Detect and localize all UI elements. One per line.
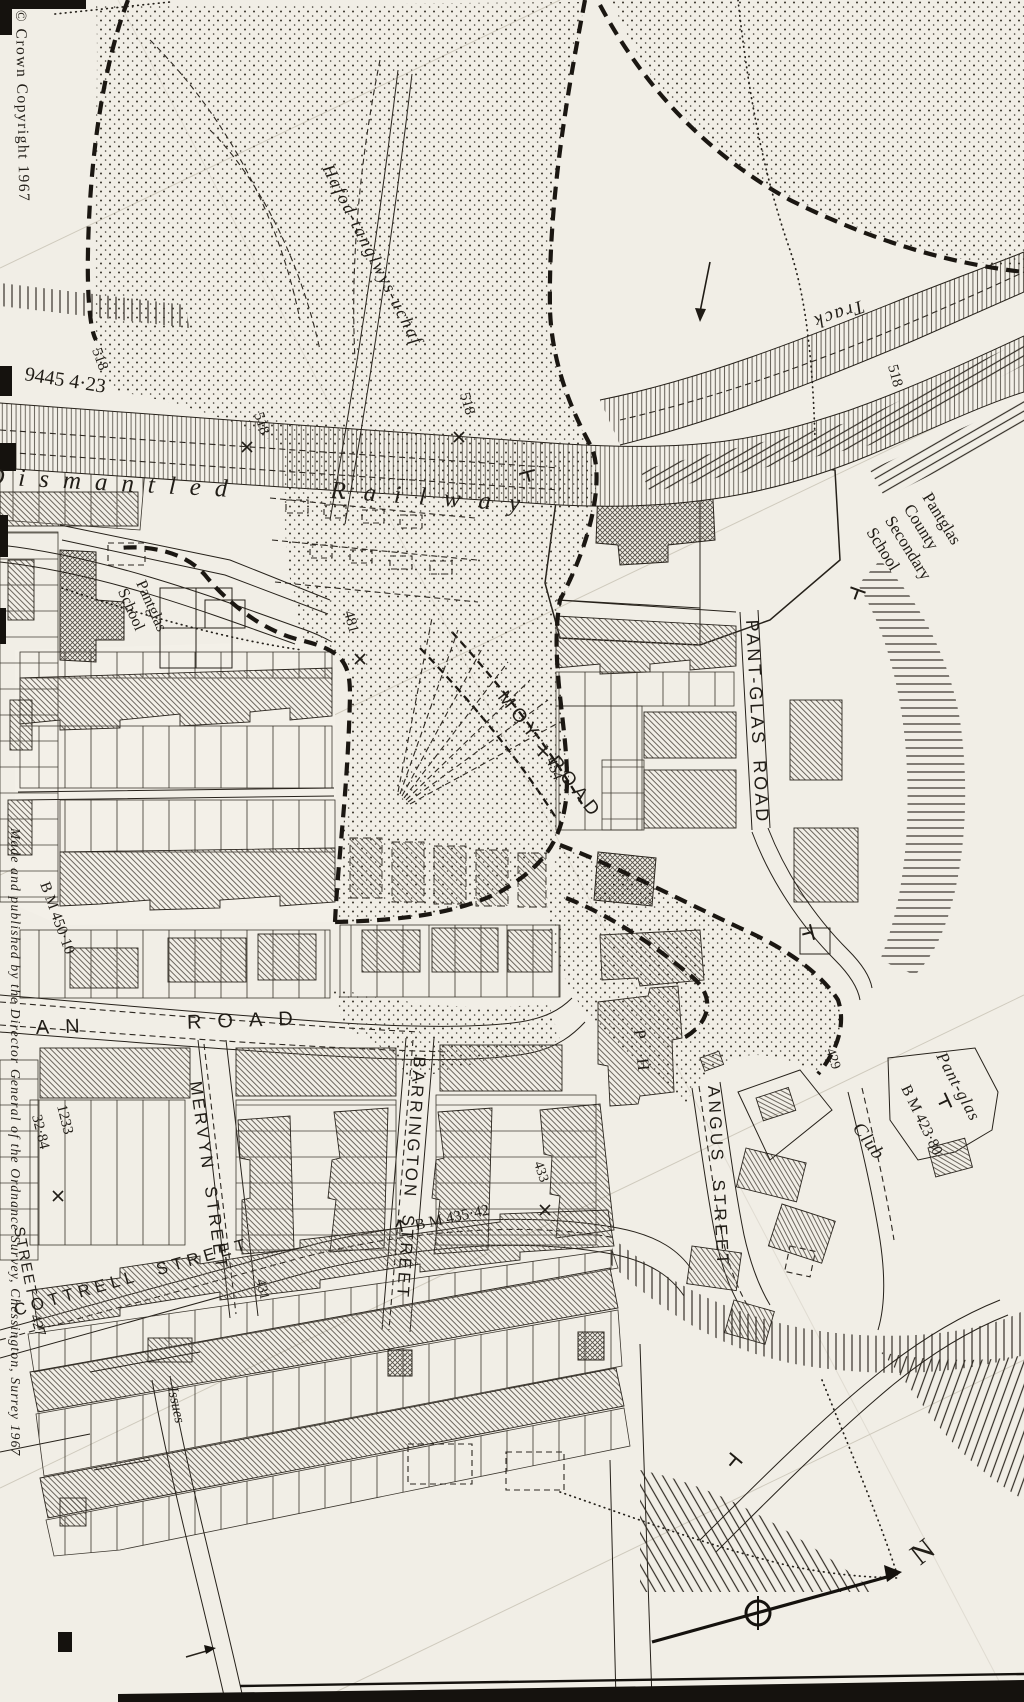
imprint-label: Made and published by the Director Gener… <box>8 827 23 1457</box>
spot-429: 429 <box>822 1047 843 1072</box>
aberfan-road-label: AN ROAD <box>35 1007 309 1039</box>
angus-street-label: ANGUS STREET <box>704 1085 733 1268</box>
copyright-label: © Crown Copyright 1967 <box>12 10 32 203</box>
pant-glas-road-label: PANT-GLAS ROAD <box>742 619 773 824</box>
flow-arrow <box>695 262 710 322</box>
valley-bank-east <box>858 560 965 975</box>
hachure-bowl <box>560 1240 1024 1592</box>
map-canvas: © Crown Copyright 1967 Made and publishe… <box>0 0 1024 1702</box>
os-map-aberfan: © Crown Copyright 1967 Made and publishe… <box>0 0 1024 1702</box>
club-label: Club <box>848 1119 889 1164</box>
north-label: N <box>904 1532 941 1571</box>
pant-glas-house-label: Pant-glas <box>932 1048 985 1124</box>
bm-423-label: B M 423·80 <box>897 1082 946 1158</box>
spot-518-d: 518 <box>884 363 905 389</box>
